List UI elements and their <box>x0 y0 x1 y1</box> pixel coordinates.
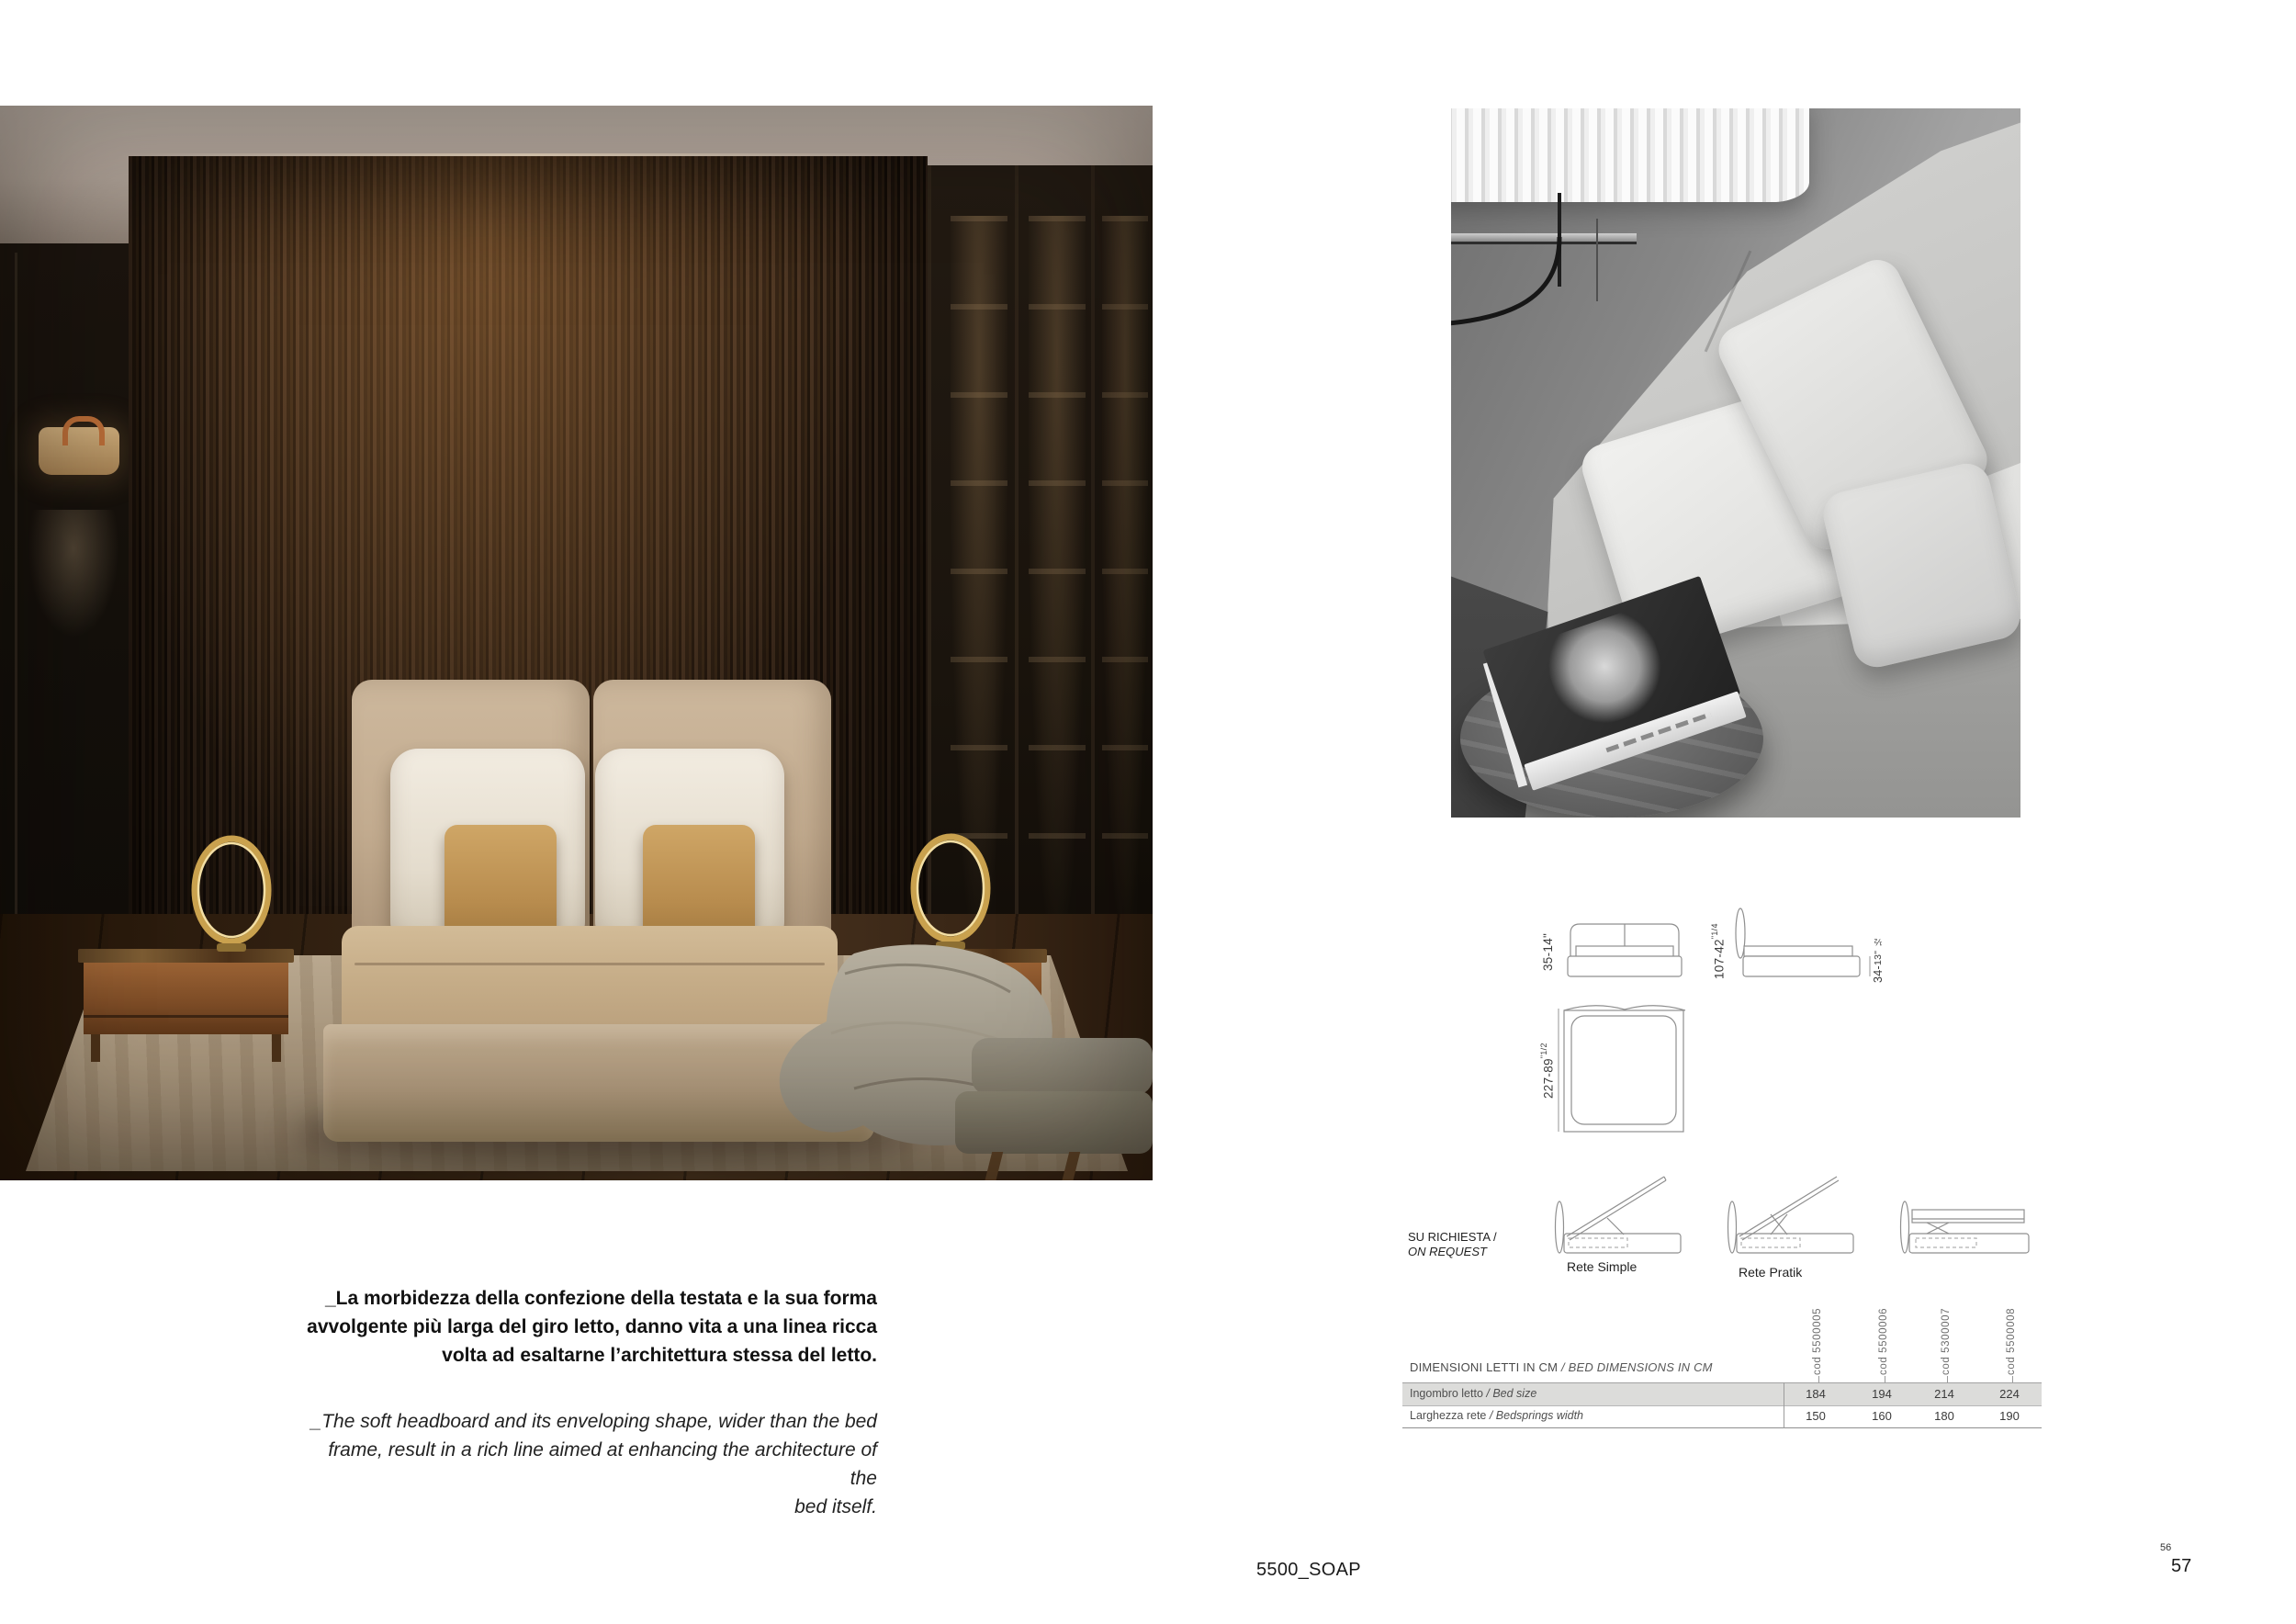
dim-value: 227-89 <box>1542 1059 1556 1100</box>
dim-bed-length: 227-89"1/2 <box>1539 1029 1556 1113</box>
caption-it-line: volta ad esaltarne l’architettura stessa… <box>303 1341 877 1370</box>
dim-headboard-height: 107-42"1/4 <box>1710 915 1727 988</box>
row-label: Ingombro letto / Bed size <box>1410 1387 1536 1400</box>
wardrobe-shelf-glow <box>28 510 119 638</box>
wardrobe-lit-column <box>1102 216 1148 932</box>
table-cell: 224 <box>1982 1387 2037 1401</box>
rete-pratik-headboard <box>1728 1201 1737 1253</box>
dim-value: 107-42 <box>1713 940 1727 980</box>
wardrobe-lit-column <box>1029 216 1086 932</box>
ottoman <box>955 1038 1153 1180</box>
caption-en-line: bed itself. <box>303 1493 877 1521</box>
on-request-block: SU RICHIESTA / ON REQUEST <box>1408 1230 1497 1259</box>
dim-value: 34- <box>1872 965 1885 983</box>
table-cell: 160 <box>1854 1409 1909 1423</box>
caption-en-line: frame, result in a rich line aimed at en… <box>303 1436 877 1493</box>
dim-front-height: 35-14" <box>1541 924 1555 979</box>
rete-pratik-label: Rete Pratik <box>1739 1265 1802 1280</box>
dim-fraction: "1/4 <box>1710 924 1719 940</box>
row-label-en: / Bedsprings width <box>1490 1409 1583 1422</box>
column-tick <box>1885 1376 1885 1382</box>
on-request-it: SU RICHIESTA / <box>1408 1230 1497 1245</box>
table-row-bed-size: Ingombro letto / Bed size 184 194 214 22… <box>1402 1382 2042 1406</box>
caption-it-line: _La morbidezza della confezione della te… <box>303 1284 877 1313</box>
table-divider <box>1784 1382 1784 1428</box>
rete-lift-headboard <box>1901 1201 1909 1253</box>
bedroom-photo <box>0 106 1153 1180</box>
table-cell: 190 <box>1982 1409 2037 1423</box>
caption-english: _The soft headboard and its enveloping s… <box>303 1407 877 1521</box>
product-code: 5500_SOAP <box>1256 1560 1361 1581</box>
wardrobe-lit-column <box>951 216 1007 932</box>
table-cell: 194 <box>1854 1387 1909 1401</box>
table-cell: 180 <box>1917 1409 1972 1423</box>
column-header-cod: cod 5500005 <box>1812 1302 1823 1375</box>
ring-lamp-left <box>176 831 287 969</box>
row-label-it: Ingombro letto <box>1410 1387 1486 1400</box>
caption-en-line: _The soft headboard and its enveloping s… <box>303 1407 877 1436</box>
table-title-en: / BED DIMENSIONS IN CM <box>1561 1360 1713 1374</box>
page-number-left: 56 <box>2160 1542 2171 1553</box>
ottoman-cushion <box>972 1038 1153 1095</box>
catalog-spread: _La morbidezza della confezione della te… <box>0 0 2296 1624</box>
caption-italian: _La morbidezza della confezione della te… <box>303 1284 877 1370</box>
column-header-cod: cod 5500008 <box>2006 1302 2017 1375</box>
table-cell: 184 <box>1788 1387 1843 1401</box>
nightstand-leg <box>272 1034 281 1062</box>
table-title-it: DIMENSIONI LETTI IN CM <box>1410 1360 1558 1374</box>
rete-simple-label: Rete Simple <box>1567 1259 1637 1274</box>
row-label-en: / Bed size <box>1486 1387 1536 1400</box>
column-tick <box>1947 1376 1948 1382</box>
table-row-bedsprings-width: Larghezza rete / Bedsprings width 150 16… <box>1402 1405 2042 1428</box>
dim-fraction: "1/2 <box>1539 1043 1548 1059</box>
handbag <box>39 427 119 475</box>
table-cell: 214 <box>1917 1387 1972 1401</box>
table-cell: 150 <box>1788 1409 1843 1423</box>
lamp-cable <box>1451 237 1626 366</box>
dim-base-height: 34-13" ½ <box>1872 935 1885 985</box>
ottoman-leg <box>1062 1152 1080 1180</box>
caption-block: _La morbidezza della confezione della te… <box>303 1284 877 1521</box>
on-request-en: ON REQUEST <box>1408 1245 1497 1259</box>
headboard-detail-photo <box>1451 108 2020 818</box>
nightstand-drawer <box>84 963 288 1034</box>
column-header-cod: cod 5500006 <box>1878 1302 1889 1375</box>
column-header-cod: cod 5300007 <box>1941 1302 1952 1375</box>
rete-simple-headboard <box>1556 1201 1564 1253</box>
column-tick <box>1818 1376 1819 1382</box>
plan-mattress <box>1571 1016 1676 1124</box>
nightstand-leg <box>91 1034 100 1062</box>
ottoman-seat <box>955 1091 1153 1154</box>
table-title: DIMENSIONI LETTI IN CM / BED DIMENSIONS … <box>1410 1360 1713 1374</box>
ottoman-leg <box>985 1152 1003 1180</box>
page-number: 57 <box>2171 1556 2191 1577</box>
row-label-it: Larghezza rete <box>1410 1409 1490 1422</box>
dim-value: 35-14" <box>1541 932 1555 970</box>
caption-it-line: avvolgente più larga del giro letto, dan… <box>303 1313 877 1341</box>
wall-lamp-shade <box>1451 108 1809 202</box>
dimensions-table: Ingombro letto / Bed size 184 194 214 22… <box>1402 1382 2042 1427</box>
technical-drawings <box>1515 900 2048 1286</box>
row-label: Larghezza rete / Bedsprings width <box>1410 1409 1583 1422</box>
column-tick <box>2012 1376 2013 1382</box>
dim-inches: 13" ½ <box>1873 937 1884 966</box>
